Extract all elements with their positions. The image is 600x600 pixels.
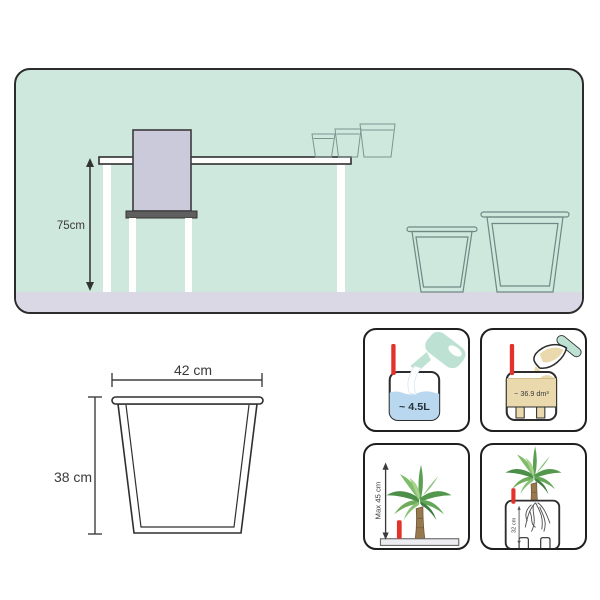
arrow-down-icon: [86, 282, 94, 291]
width-label: 42 cm: [174, 362, 212, 378]
water-level-indicator-icon: [391, 344, 395, 375]
plant-icon: [387, 465, 452, 540]
floor-planter-small: [407, 227, 477, 292]
cup-medium: [335, 129, 361, 157]
foot-notch: [541, 538, 550, 548]
table-height-label: 75cm: [57, 220, 85, 232]
height-dimension-line: [88, 397, 102, 534]
cup-large: [360, 124, 395, 157]
inner-pot-foot: [537, 407, 545, 418]
chair: [126, 130, 197, 292]
water-volume-label: ~ 4.5L: [399, 401, 430, 413]
planter-rim: [112, 397, 263, 404]
chair-seat: [126, 211, 197, 218]
floor-planters: [407, 212, 569, 292]
cup-small: [312, 134, 335, 157]
chair-back: [133, 130, 191, 211]
floor-planter-large: [481, 212, 569, 292]
table-leg-right: [337, 164, 345, 292]
max-plant-height-label: Max 45 cm: [373, 482, 382, 520]
room-scene: 75cm: [16, 70, 582, 312]
product-dimension-diagram: 75cm: [0, 0, 600, 600]
planter-top-edge: [380, 539, 458, 546]
chair-leg-left: [129, 218, 136, 292]
planter-outline-drawing: [112, 397, 263, 533]
plant-height-dimension: Max 45 cm: [373, 463, 388, 540]
substrate-volume-label: ~ 36.9 dm³: [514, 390, 549, 398]
feature-substrate-volume: ~ 36.9 dm³: [480, 328, 587, 432]
water-level-indicator-icon: [510, 344, 514, 375]
planter-dimension-drawing: 42 cm 38 cm: [40, 352, 280, 562]
trowel-icon: [534, 334, 584, 374]
planting-depth-label: 32 cm: [511, 517, 517, 533]
water-level-indicator-icon: [511, 488, 515, 503]
chair-leg-right: [185, 218, 192, 292]
inner-pot-foot: [516, 407, 524, 418]
foot-notch: [519, 538, 528, 548]
height-label: 38 cm: [54, 469, 92, 485]
feature-planting-depth: 32 cm: [480, 443, 587, 550]
table-leg-left: [103, 164, 111, 292]
feature-water-volume: ~ 4.5L: [363, 328, 470, 432]
cups-on-table: [312, 124, 395, 157]
room-scene-panel: 75cm: [14, 68, 584, 314]
floor: [16, 292, 582, 312]
arrow-up-icon: [383, 463, 389, 470]
feature-max-plant-height: Max 45 cm: [363, 443, 470, 550]
water-level-indicator-icon: [397, 520, 402, 539]
arrow-up-icon: [86, 158, 94, 167]
table-height-dimension: 75cm: [57, 158, 94, 291]
watering-can-icon: [410, 330, 468, 372]
